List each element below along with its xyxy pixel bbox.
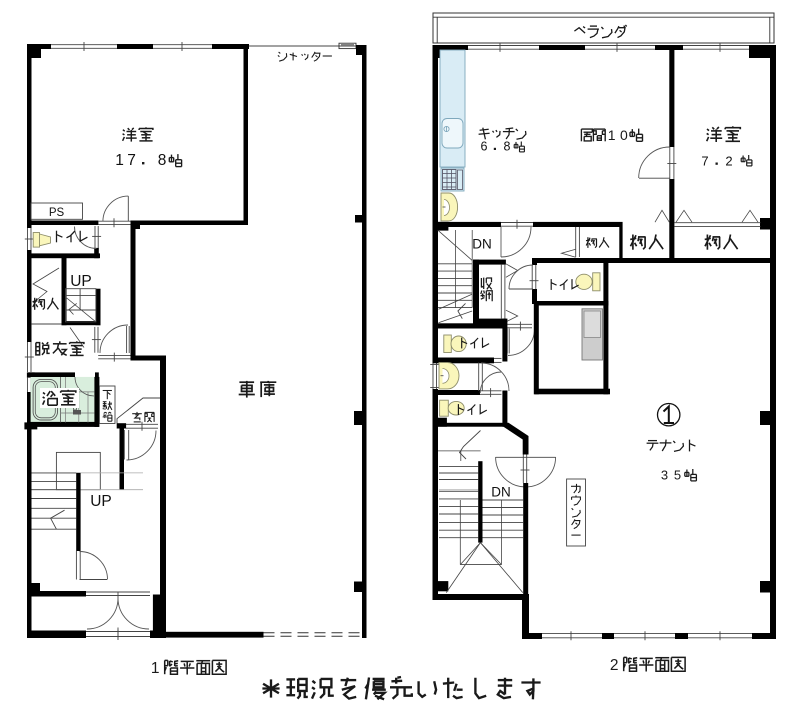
svg-text:1: 1 (115, 152, 124, 169)
svg-text:1: 1 (151, 660, 160, 677)
svg-text:5: 5 (674, 468, 681, 483)
svg-text:8: 8 (504, 140, 511, 154)
svg-text:3: 3 (661, 468, 668, 483)
svg-text:2: 2 (610, 657, 619, 674)
svg-text:DN: DN (491, 485, 511, 500)
svg-text:0: 0 (620, 127, 628, 143)
svg-text:2: 2 (725, 154, 732, 169)
svg-text:DN: DN (472, 237, 492, 252)
svg-text:7: 7 (127, 152, 136, 169)
svg-text:8: 8 (158, 152, 167, 169)
svg-text:6: 6 (481, 140, 488, 154)
svg-text:7: 7 (701, 154, 708, 169)
svg-text:UP: UP (70, 273, 92, 290)
svg-text:PS: PS (49, 207, 65, 219)
svg-text:1: 1 (608, 127, 616, 143)
svg-text:UP: UP (90, 493, 112, 510)
